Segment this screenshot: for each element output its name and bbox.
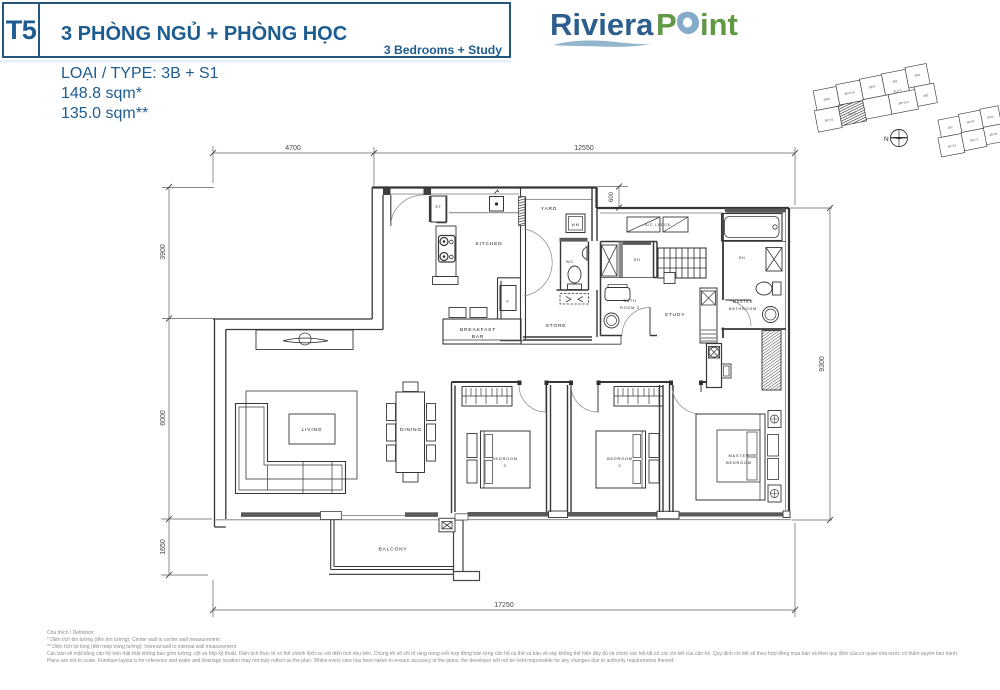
svg-text:STUDY: STUDY (665, 312, 686, 318)
svg-text:SH: SH (634, 258, 641, 262)
svg-text:N: N (884, 136, 889, 143)
svg-text:3: 3 (504, 463, 507, 468)
svg-text:LIVING: LIVING (302, 427, 323, 433)
svg-text:1650: 1650 (160, 539, 167, 555)
svg-text:BALCONY: BALCONY (379, 547, 408, 553)
svg-text:DINING: DINING (400, 427, 422, 433)
svg-text:6000: 6000 (160, 410, 167, 426)
svg-text:BEDROOM: BEDROOM (492, 456, 518, 461)
svg-text:SH: SH (739, 256, 746, 260)
svg-text:600: 600 (609, 191, 615, 202)
svg-text:WM: WM (572, 223, 580, 227)
svg-text:WC: WC (566, 260, 574, 264)
svg-text:4700: 4700 (285, 145, 301, 152)
svg-text:BAR: BAR (472, 334, 484, 340)
svg-text:12550: 12550 (574, 145, 594, 152)
svg-text:MASTER: MASTER (733, 300, 754, 304)
svg-text:2: 2 (619, 463, 622, 468)
svg-text:17250: 17250 (494, 602, 514, 609)
svg-text:F: F (506, 300, 509, 304)
svg-text:3900: 3900 (160, 244, 167, 260)
svg-text:ROOM 2: ROOM 2 (620, 306, 640, 310)
svg-text:YARD: YARD (541, 206, 557, 212)
svg-text:KITCHEN: KITCHEN (475, 241, 502, 247)
svg-text:BEDROOM: BEDROOM (726, 460, 752, 465)
svg-text:A/C LEDGE: A/C LEDGE (645, 223, 671, 227)
svg-text:ST: ST (435, 205, 441, 209)
svg-text:MASTER: MASTER (728, 453, 749, 458)
svg-text:BATH: BATH (623, 299, 636, 303)
svg-text:BEDROOM: BEDROOM (607, 456, 633, 461)
svg-text:STORE: STORE (546, 323, 567, 329)
svg-text:BREAKFAST: BREAKFAST (460, 327, 496, 333)
svg-text:9300: 9300 (819, 356, 826, 372)
svg-text:BATHROOM: BATHROOM (729, 307, 757, 311)
